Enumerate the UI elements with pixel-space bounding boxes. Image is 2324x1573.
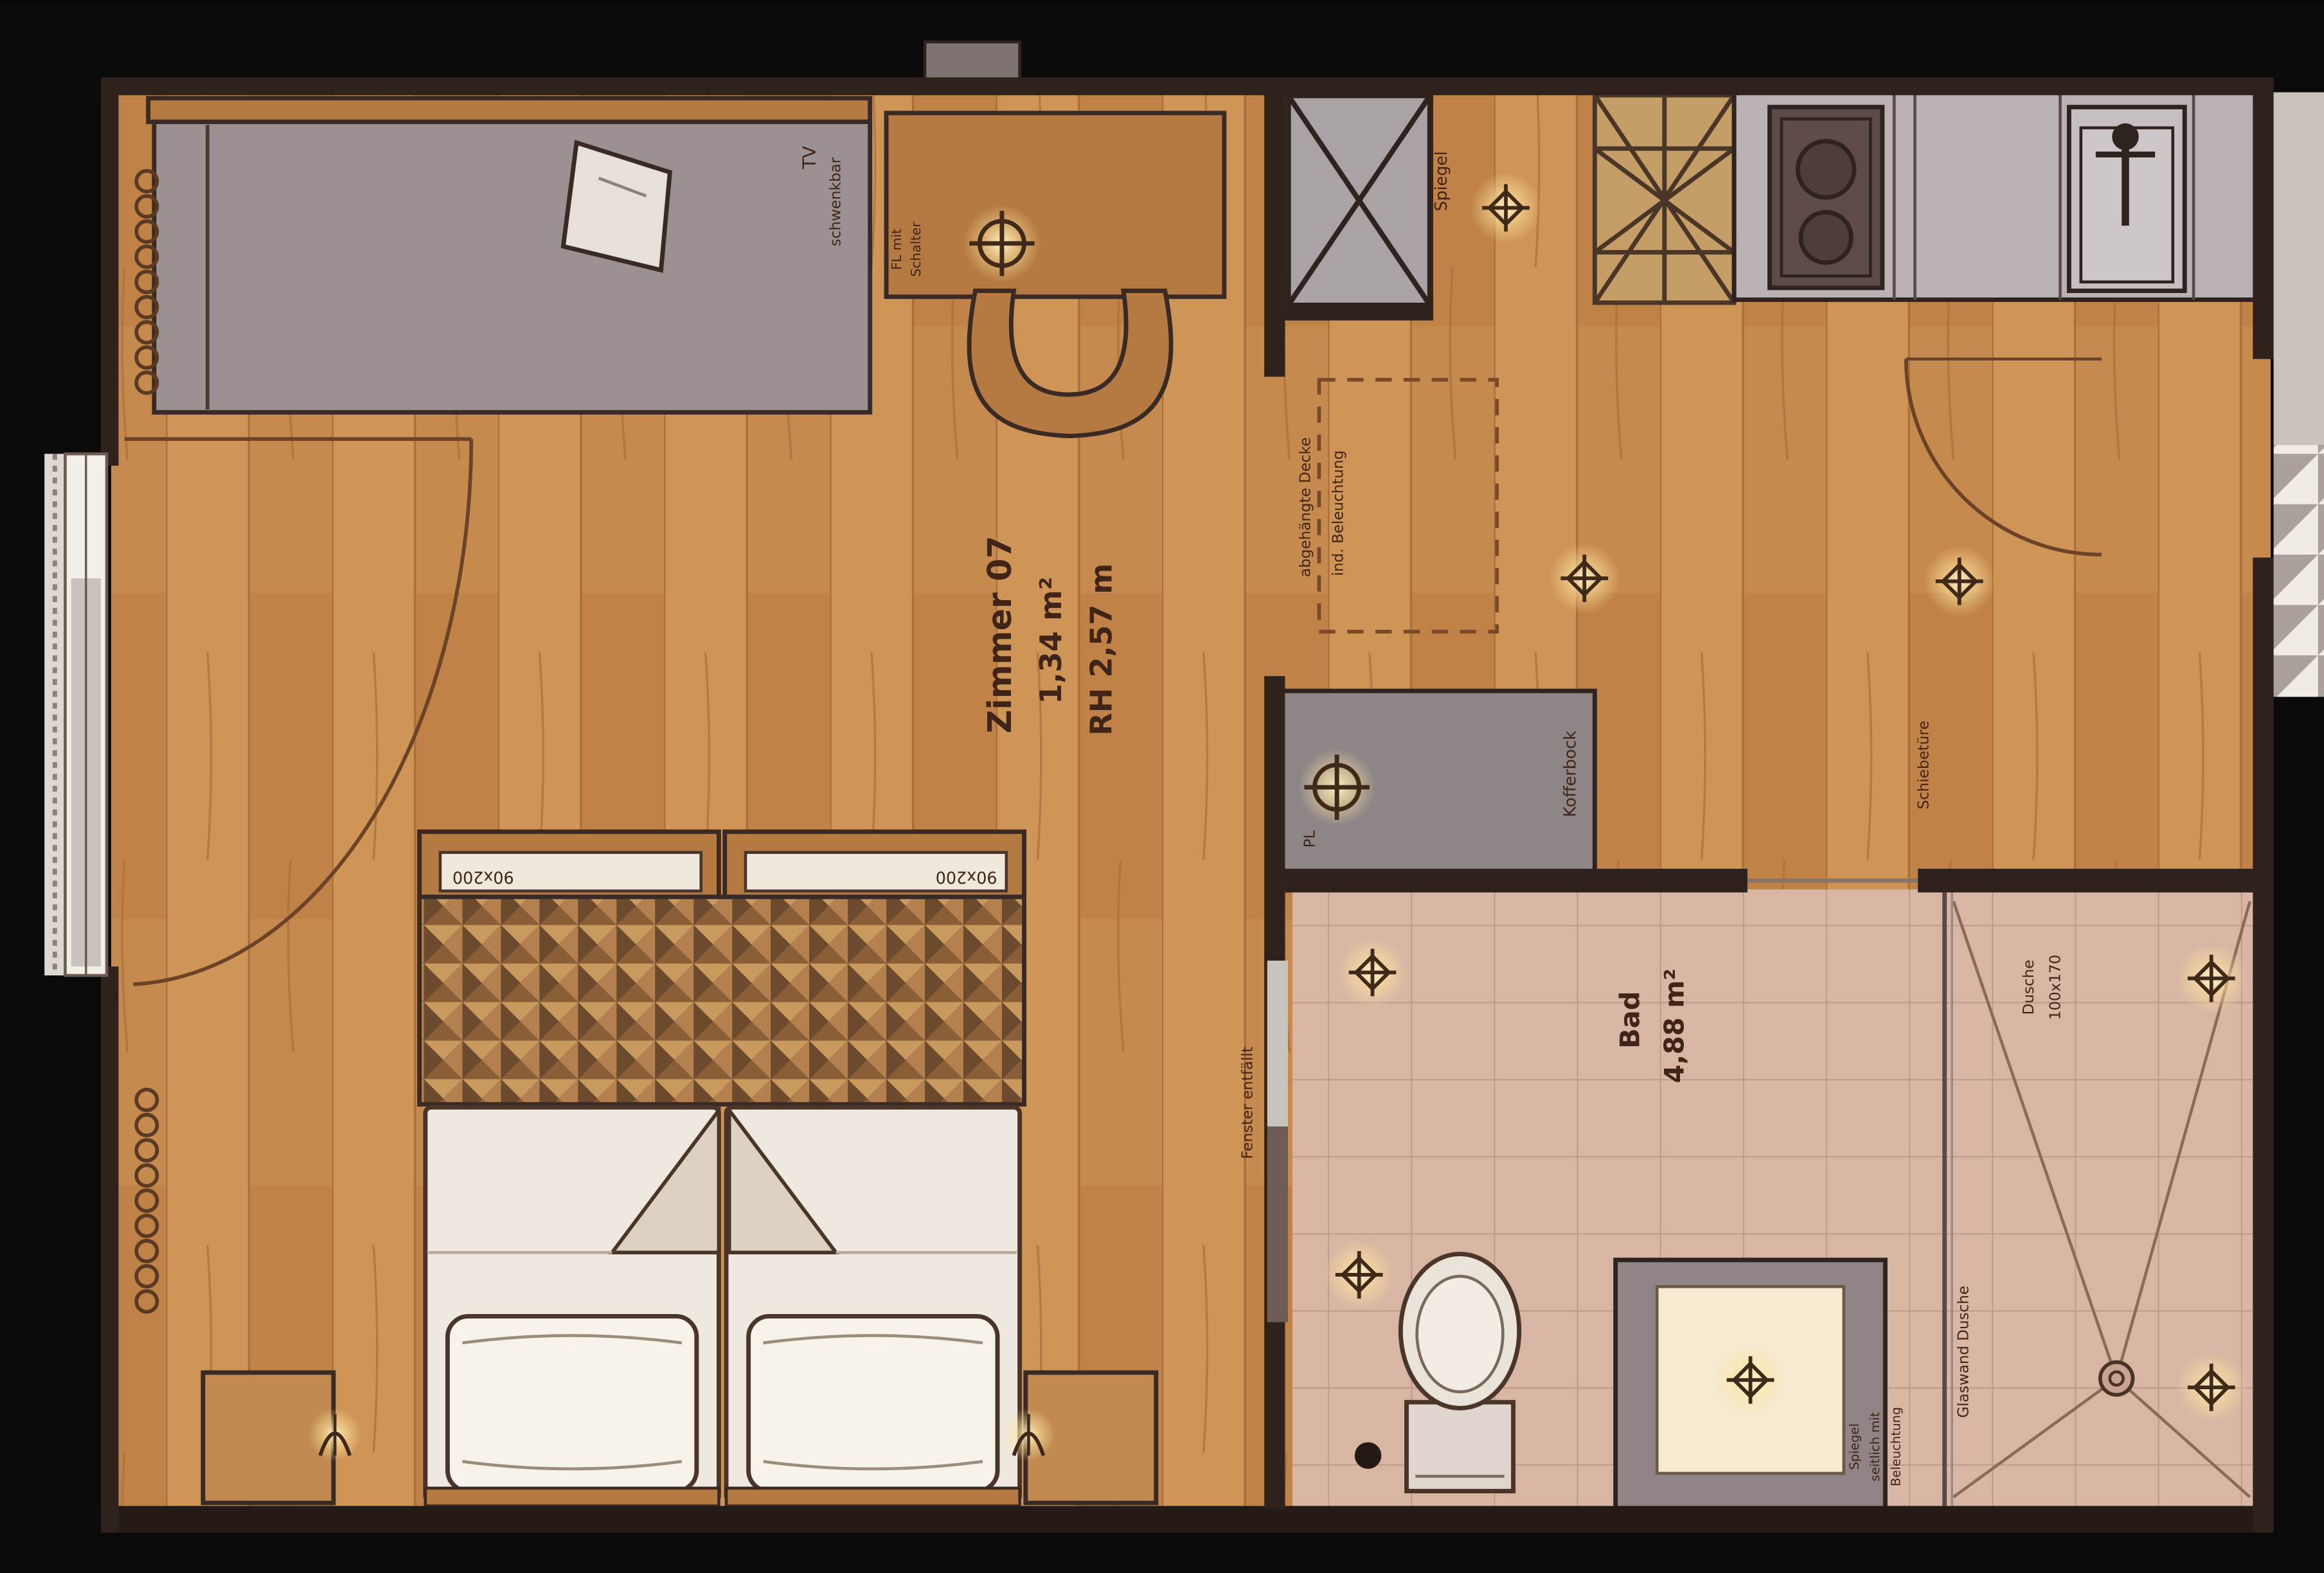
spotlight-icon: [1323, 1240, 1395, 1311]
right-landing: [2274, 93, 2324, 445]
right-stair-triangles: [2274, 445, 2324, 697]
bath-title: Bad: [1614, 991, 1646, 1049]
wall-right-upper: [2253, 78, 2273, 359]
spotlight-icon: [2176, 943, 2247, 1014]
spotlight-icon: [1470, 172, 1542, 244]
wall-mid-stub: [1285, 303, 1433, 321]
wall-bath-top-left: [1285, 869, 1747, 893]
reading-lamp-icon: [1002, 1408, 1055, 1461]
luggage-label: Kofferbock: [1560, 731, 1579, 817]
nightstand-right: [1002, 1373, 1156, 1503]
wardrobe-shaft: [1288, 95, 1430, 305]
desk-top: [886, 113, 1224, 297]
luggage-bench: [1274, 691, 1595, 871]
wall-right-lower: [2253, 558, 2273, 1533]
sliding-door-label: Schiebetüre: [1915, 721, 1932, 810]
vanity-label-3: Beleuchtung: [1888, 1407, 1903, 1487]
left-window: [44, 454, 107, 975]
kitchenette-counter: [1734, 93, 2258, 300]
floorplan-page: Zimmer 07 1,34 m² RH 2,57 m Bad 4,88 m² …: [0, 0, 2324, 1573]
cooktop-ring-2: [1801, 212, 1851, 262]
tv-label-1: TV: [798, 146, 819, 170]
shower-drain-outer: [2100, 1362, 2133, 1395]
wall-left-upper: [101, 78, 119, 466]
former-window-panel-dark: [1267, 1126, 1288, 1322]
ceiling-label-2: ind. Beleuchtung: [1330, 450, 1346, 576]
desk: [886, 113, 1224, 297]
spotlight-icon: [1337, 937, 1408, 1008]
stair-hatch-unit: [1595, 95, 1734, 303]
tv-label-2: schwenkbar: [828, 157, 845, 246]
mirror-label: Spiegel: [1431, 151, 1451, 211]
wall-bottom: [101, 1506, 2271, 1533]
spotlight-icon: [1924, 546, 1995, 617]
desk-light-label-1: FL mit: [889, 229, 904, 270]
faucet-head: [2112, 123, 2139, 150]
bath-area: 4,88 m²: [1659, 968, 1690, 1083]
wall-left-lower: [101, 966, 119, 1533]
bed-base-left: [425, 1488, 719, 1506]
sofa-body: [154, 122, 870, 413]
bed-base-right: [726, 1488, 1020, 1506]
former-window-panel-light: [1267, 961, 1288, 1126]
room-title: Zimmer 07: [981, 536, 1019, 734]
room-area: 1,34 m²: [1033, 577, 1068, 704]
wall-top: [101, 78, 2271, 96]
vanity-label-1: Spiegel: [1847, 1423, 1862, 1470]
floorplan-canvas: Zimmer 07 1,34 m² RH 2,57 m Bad 4,88 m² …: [0, 0, 2324, 1573]
ceiling-lamp-icon: [963, 205, 1041, 282]
toilet: [1400, 1254, 1519, 1491]
spotlight-icon: [2176, 1352, 2247, 1423]
pl-label: PL: [1302, 830, 1319, 848]
shower-label-2: 100x170: [2048, 955, 2064, 1020]
glass-wall-label: Glaswand Dusche: [1956, 1286, 1972, 1418]
shower-label-1: Dusche: [2021, 960, 2037, 1015]
right-outside: [2274, 93, 2324, 697]
bed-size-right-label: 90x200: [936, 868, 997, 887]
bed-size-left-label: 90x200: [452, 868, 514, 887]
vanity-label-2: seitlich mit: [1868, 1412, 1882, 1481]
sofa-daybed: [148, 98, 870, 413]
sofa-wall-frame: [148, 98, 870, 122]
ceiling-lamp-icon: [1298, 749, 1375, 826]
window-note-label: Fenster entfällt: [1240, 1047, 1256, 1159]
reading-lamp-icon: [308, 1408, 362, 1461]
spotlight-icon: [1715, 1344, 1786, 1416]
room-height: RH 2,57 m: [1084, 564, 1119, 736]
spotlight-icon: [1549, 543, 1620, 614]
ceiling-label-1: abgehängte Decke: [1298, 438, 1314, 577]
wall-mid-upper: [1264, 93, 1285, 377]
toilet-bowl-inner: [1417, 1276, 1503, 1392]
floor-drain-dot: [1355, 1442, 1382, 1469]
desk-light-label-2: Schalter: [908, 222, 924, 277]
bed-runner-mosaic: [420, 897, 1024, 1105]
wall-bath-top-right: [1918, 869, 2258, 893]
cooktop-ring-1: [1798, 141, 1854, 198]
